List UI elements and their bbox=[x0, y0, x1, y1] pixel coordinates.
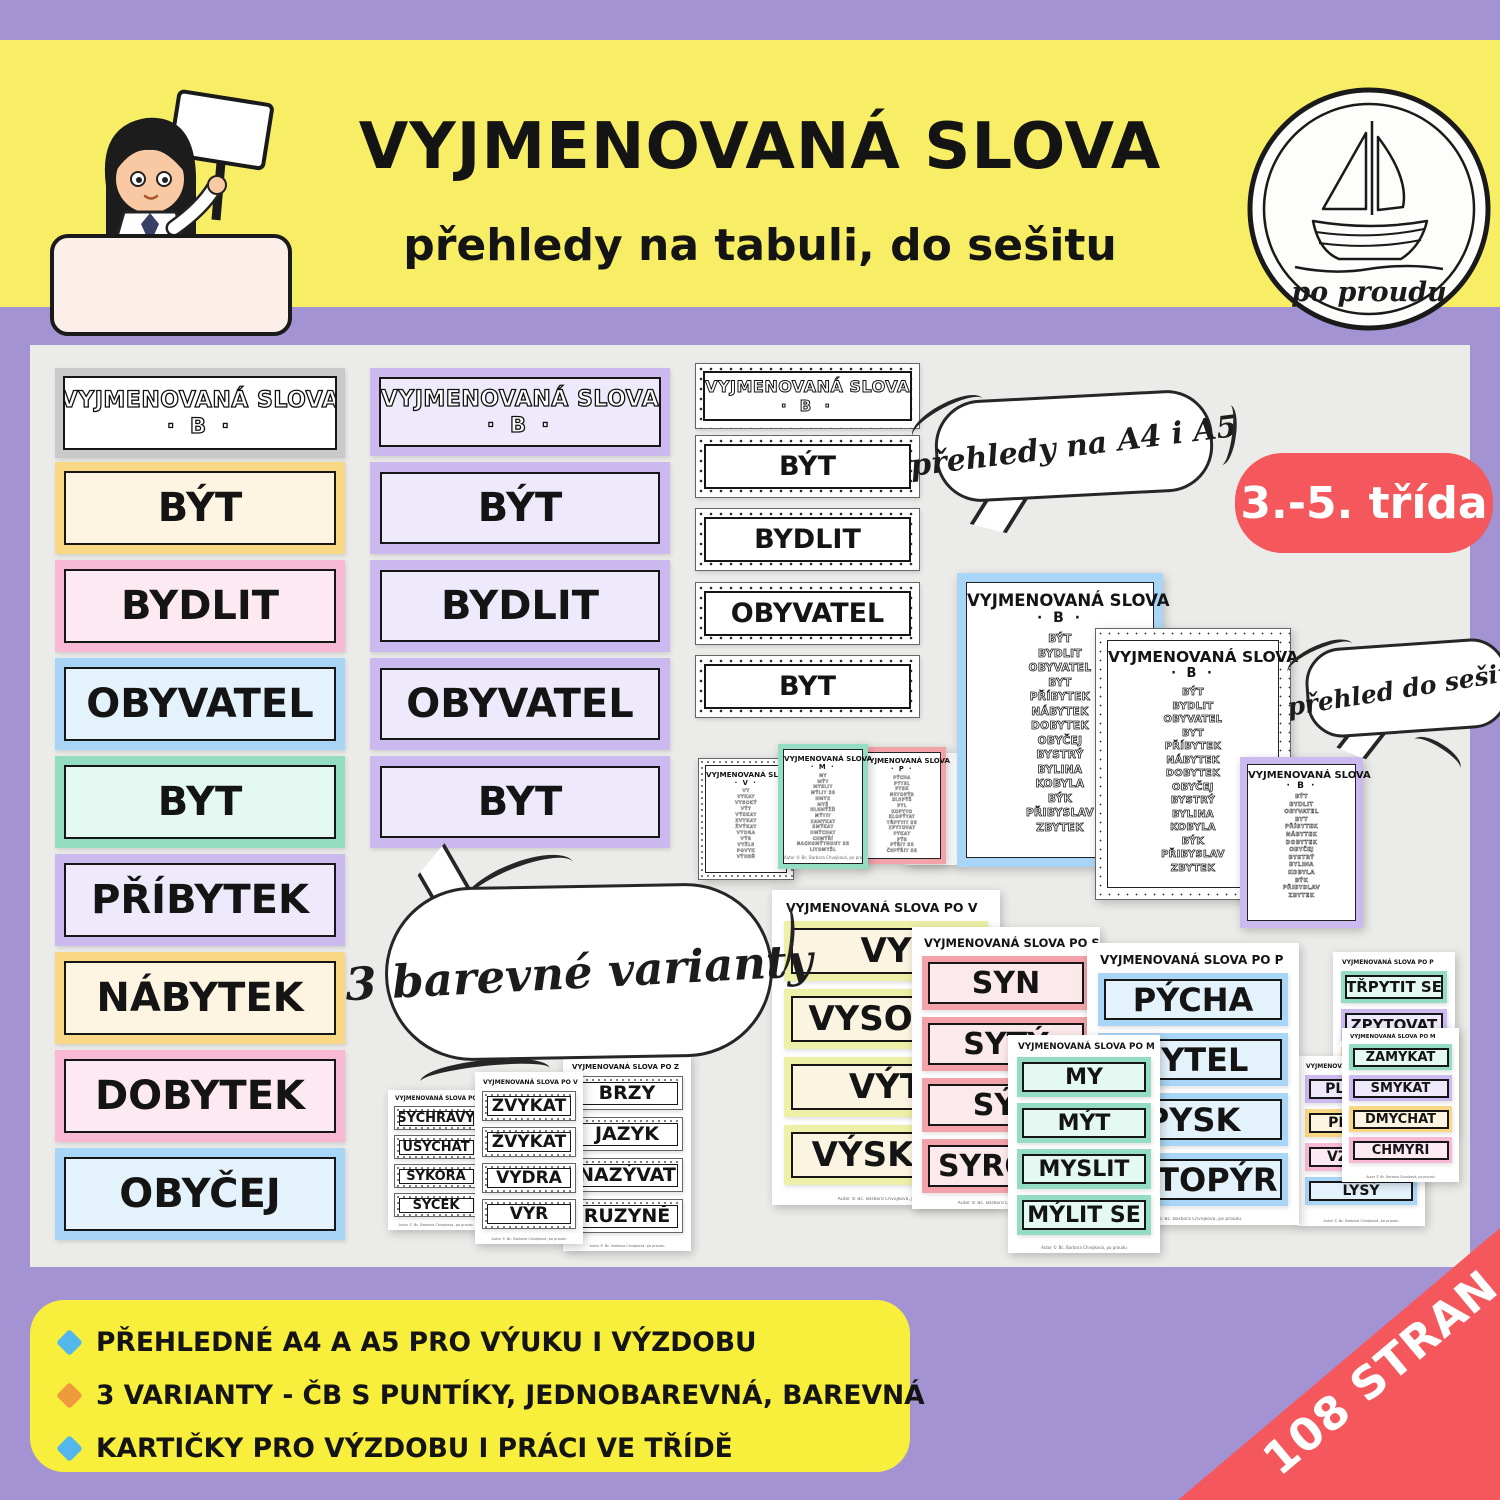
word-card: PŘÍBYTEK bbox=[55, 854, 345, 946]
logo-text: po proudu bbox=[1291, 277, 1447, 308]
diamond-icon bbox=[56, 1382, 83, 1409]
word-card: BYT bbox=[55, 756, 345, 848]
word-card: DMÝCHAT bbox=[1349, 1106, 1452, 1132]
word-card: MÝLIT SE bbox=[1017, 1195, 1151, 1235]
bw-sheet-po-v: VYJMENOVANÁ SLOVA PO V ZVYKAT ŽVÝKAT VYD… bbox=[475, 1072, 583, 1244]
speech-bubble-notebook: přehled do sešitu bbox=[1303, 636, 1500, 740]
word-card: MY bbox=[1017, 1057, 1151, 1097]
mascot-girl-illustration bbox=[42, 86, 297, 341]
word-card: USYCHAT bbox=[394, 1135, 478, 1159]
bw-sheet-po-s: VYJMENOVANÁ SLOVA PO S SYCHRAVÝ USYCHAT … bbox=[388, 1090, 484, 1230]
word-card: RUZYNĚ bbox=[571, 1199, 683, 1233]
word-card: BÝT bbox=[55, 462, 345, 554]
word-card: SÝKORA bbox=[394, 1164, 478, 1188]
word-card: BRZY bbox=[571, 1076, 683, 1110]
word-card: BYDLIT bbox=[55, 560, 345, 652]
preview-area: VYJMENOVANÁ SLOVA · B · BÝT BYDLIT OBYVA… bbox=[30, 345, 1470, 1267]
word-card: DOBYTEK bbox=[55, 1050, 345, 1142]
page-title: VYJMENOVANÁ SLOVA bbox=[320, 110, 1200, 184]
pastel-sheet-po-m: VYJMENOVANÁ SLOVA PO M ZAMYKAT SMÝKAT DM… bbox=[1342, 1028, 1459, 1182]
word-card: BYT bbox=[370, 756, 670, 848]
top-banner: VYJMENOVANÁ SLOVA přehledy na tabuli, do… bbox=[0, 40, 1500, 307]
word-card: MYSLIT bbox=[1017, 1149, 1151, 1189]
features-box: PŘEHLEDNÉ A4 A A5 PRO VÝUKU I VÝZDOBU 3 … bbox=[30, 1300, 910, 1472]
diamond-icon bbox=[56, 1435, 83, 1462]
word-card: ZVYKAT bbox=[482, 1091, 576, 1121]
word-card: BÝT bbox=[370, 462, 670, 554]
speech-bubble-variants: 3 barevné varianty bbox=[384, 882, 775, 1063]
feature-item: PŘEHLEDNÉ A4 A A5 PRO VÝUKU I VÝZDOBU bbox=[56, 1320, 910, 1364]
sketch-stroke bbox=[1408, 730, 1465, 777]
feature-item: KARTIČKY PRO VÝZDOBU I PRÁCI VE TŘÍDĚ bbox=[56, 1426, 910, 1470]
card-letter: · B · bbox=[167, 414, 234, 438]
grade-badge: 3.-5. třída bbox=[1235, 453, 1493, 553]
header-card-purple: VYJMENOVANÁ SLOVA · B · bbox=[370, 368, 670, 456]
card-sheet-po-m: VYJMENOVANÁ SLOVA PO M MY MÝT MYSLIT MÝL… bbox=[1008, 1035, 1160, 1253]
word-card: VYDRA bbox=[482, 1163, 576, 1193]
word-card: BYT bbox=[695, 655, 920, 718]
word-card: OBYVATEL bbox=[55, 658, 345, 750]
word-card: ŽVÝKAT bbox=[482, 1127, 576, 1157]
product-cover: VYJMENOVANÁ SLOVA přehledy na tabuli, do… bbox=[0, 0, 1500, 1500]
speech-bubble-formats: přehledy na A4 i A5 bbox=[933, 388, 1216, 504]
word-card: NÁBYTEK bbox=[55, 952, 345, 1044]
word-card: CHMÝŘÍ bbox=[1349, 1137, 1452, 1163]
word-card: JAZYK bbox=[571, 1117, 683, 1151]
word-card: TŘPYTIT SE bbox=[1341, 971, 1447, 1003]
word-card: BYDLIT bbox=[695, 508, 920, 571]
overview-sheet-purple-small: VYJMENOVANÁ SLOVA · B · BÝTBYDLITOBYVATE… bbox=[1240, 757, 1363, 928]
header-card-dotted: VYJMENOVANÁ SLOVA · B · bbox=[695, 363, 920, 429]
pages-ribbon: 108 STRAN bbox=[1178, 1228, 1500, 1500]
word-card: BÝT bbox=[695, 435, 920, 498]
word-card: SÝČEK bbox=[394, 1193, 478, 1217]
blank-board bbox=[52, 236, 290, 334]
word-card: PÝCHA bbox=[1098, 973, 1288, 1026]
feature-item: 3 VARIANTY - ČB S PUNTÍKY, JEDNOBAREVNÁ,… bbox=[56, 1373, 910, 1417]
word-card: SMÝKAT bbox=[1349, 1075, 1452, 1101]
header-card-colorful: VYJMENOVANÁ SLOVA · B · bbox=[55, 368, 345, 458]
word-card: OBYČEJ bbox=[55, 1148, 345, 1240]
word-card: BYDLIT bbox=[370, 560, 670, 652]
brand-logo: po proudu bbox=[1243, 83, 1495, 335]
word-card: NAZÝVAT bbox=[571, 1158, 683, 1192]
word-card: VÝR bbox=[482, 1199, 576, 1229]
word-card: OBYVATEL bbox=[695, 582, 920, 645]
word-card: OBYVATEL bbox=[370, 658, 670, 750]
diamond-icon bbox=[56, 1329, 83, 1356]
card-title: VYJMENOVANÁ SLOVA bbox=[63, 388, 337, 413]
page-subtitle: přehledy na tabuli, do sešitu bbox=[320, 220, 1200, 271]
mini-overview-m: VYJMENOVANÁ SLOVA · M · MYMÝTMYSLITMÝLIT… bbox=[778, 744, 868, 869]
word-card: MÝT bbox=[1017, 1103, 1151, 1143]
word-card: SYCHRAVÝ bbox=[394, 1106, 478, 1130]
word-card: SYN bbox=[922, 956, 1090, 1010]
word-card: ZAMYKAT bbox=[1349, 1044, 1452, 1070]
mini-overview-p: VYJMENOVANÁ SLOVA · P · PÝCHAPYTELPYSKNE… bbox=[858, 747, 946, 864]
